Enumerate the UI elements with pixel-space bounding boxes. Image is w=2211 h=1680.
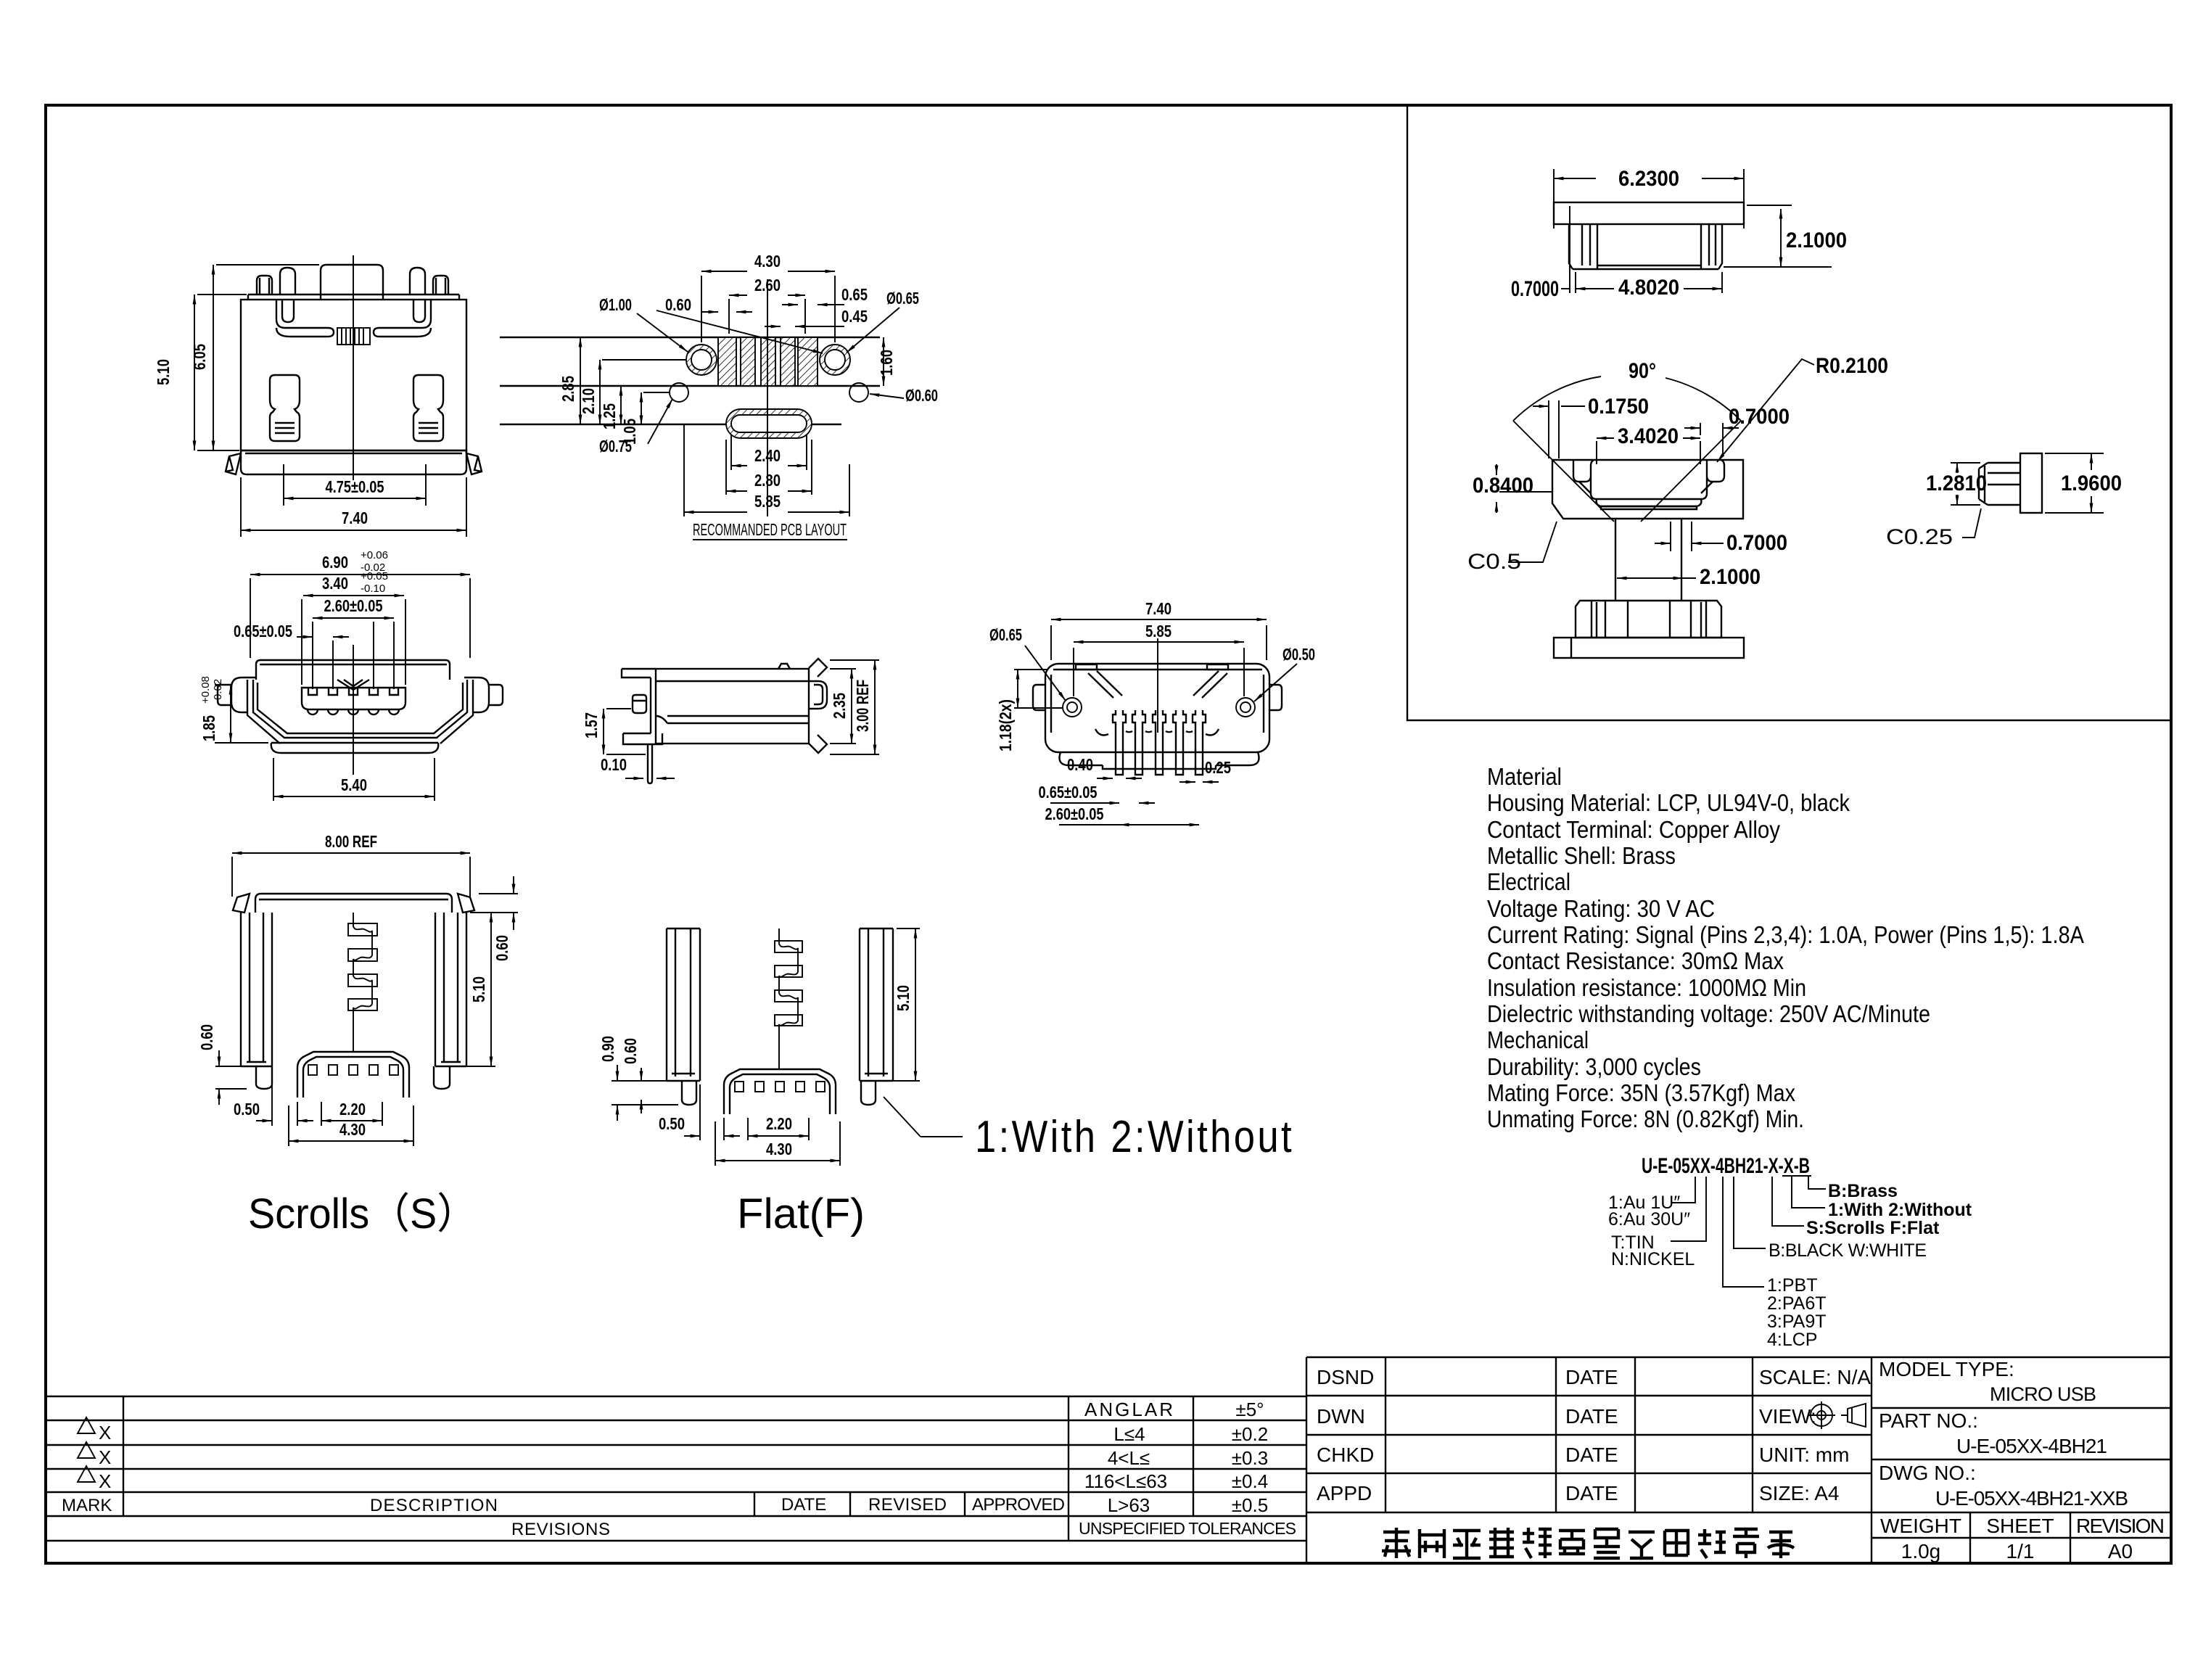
svg-text:4.75±0.05: 4.75±0.05 — [326, 477, 384, 496]
svg-text:UNIT: mm: UNIT: mm — [1759, 1444, 1849, 1466]
svg-text:0.60: 0.60 — [621, 1038, 640, 1064]
svg-text:0.65: 0.65 — [841, 285, 868, 304]
svg-text:5.10: 5.10 — [469, 976, 488, 1002]
svg-text:2:PA6T: 2:PA6T — [1767, 1293, 1827, 1314]
svg-text:+0.08: +0.08 — [199, 676, 212, 704]
svg-text:RECOMMANDED PCB LAYOUT: RECOMMANDED PCB LAYOUT — [693, 520, 847, 539]
svg-text:SHEET: SHEET — [1986, 1515, 2054, 1537]
svg-text:MARK: MARK — [62, 1496, 112, 1515]
svg-text:2.80: 2.80 — [754, 471, 781, 490]
svg-text:1.2810: 1.2810 — [1926, 472, 1987, 495]
svg-text:2.60±0.05: 2.60±0.05 — [1045, 804, 1104, 823]
svg-text:L>63: L>63 — [1108, 1494, 1150, 1516]
svg-text:Housing Material: LCP, UL94V-0: Housing Material: LCP, UL94V-0, black — [1487, 789, 1850, 816]
svg-text:6.90: 6.90 — [322, 553, 348, 572]
svg-text:5.85: 5.85 — [1145, 622, 1172, 641]
svg-text:2.1000: 2.1000 — [1700, 565, 1761, 589]
svg-text:0.60: 0.60 — [493, 935, 511, 961]
svg-text:0.7000: 0.7000 — [1729, 405, 1790, 429]
svg-text:1.18(2x): 1.18(2x) — [996, 699, 1015, 752]
svg-text:1.57: 1.57 — [582, 712, 601, 738]
svg-text:Ø1.00: Ø1.00 — [599, 295, 632, 314]
svg-text:Mechanical: Mechanical — [1487, 1026, 1589, 1053]
svg-text:1.05: 1.05 — [620, 419, 639, 445]
svg-text:1.60: 1.60 — [877, 350, 896, 376]
svg-text:Unmating Force: 8N (0.82Kgf) M: Unmating Force: 8N (0.82Kgf) Min. — [1487, 1105, 1804, 1132]
svg-text:1:With 2:Without: 1:With 2:Without — [1828, 1200, 1972, 1220]
svg-text:X: X — [99, 1446, 111, 1468]
svg-text:DWG NO.:: DWG NO.: — [1879, 1462, 1976, 1484]
svg-text:PART NO.:: PART NO.: — [1879, 1409, 1978, 1432]
svg-text:3.40: 3.40 — [322, 574, 348, 593]
svg-text:5.10: 5.10 — [154, 359, 173, 385]
svg-text:L≤4: L≤4 — [1113, 1423, 1145, 1445]
svg-text:6.05: 6.05 — [190, 344, 209, 370]
svg-text:-0.10: -0.10 — [361, 582, 385, 595]
svg-text:1.85: 1.85 — [199, 715, 218, 741]
svg-text:±0.5: ±0.5 — [1232, 1494, 1268, 1516]
svg-text:90°: 90° — [1629, 359, 1656, 383]
svg-text:1/1: 1/1 — [2006, 1540, 2035, 1562]
svg-text:DESCRIPTION: DESCRIPTION — [370, 1496, 498, 1515]
svg-text:Ø0.65: Ø0.65 — [886, 289, 919, 308]
svg-text:2.85: 2.85 — [559, 376, 577, 402]
svg-text:Metallic Shell: Brass: Metallic Shell: Brass — [1487, 842, 1676, 869]
svg-text:±5°: ±5° — [1235, 1399, 1264, 1420]
svg-text:Current Rating: Signal (Pins 2: Current Rating: Signal (Pins 2,3,4): 1.0… — [1487, 921, 2084, 948]
svg-text:0.65±0.05: 0.65±0.05 — [1039, 783, 1098, 802]
svg-text:U-E-05XX-4BH21-XXB: U-E-05XX-4BH21-XXB — [1935, 1487, 2128, 1510]
svg-text:APPROVED: APPROVED — [972, 1495, 1065, 1515]
svg-text:2.20: 2.20 — [766, 1114, 792, 1133]
svg-text:0.50: 0.50 — [659, 1114, 685, 1133]
svg-text:5.85: 5.85 — [754, 492, 781, 511]
svg-text:S:Scrolls F:Flat: S:Scrolls F:Flat — [1806, 1218, 1940, 1238]
svg-text:Flat(F): Flat(F) — [737, 1190, 865, 1238]
svg-text:MODEL TYPE:: MODEL TYPE: — [1879, 1358, 2014, 1380]
svg-text:Mating Force: 35N (3.57Kgf) Ma: Mating Force: 35N (3.57Kgf) Max — [1487, 1079, 1795, 1106]
svg-text:Ø0.65: Ø0.65 — [989, 625, 1022, 644]
svg-text:0.60: 0.60 — [197, 1024, 216, 1050]
svg-text:3.00 REF: 3.00 REF — [853, 680, 872, 732]
svg-text:0.10: 0.10 — [601, 755, 627, 774]
svg-text:Electrical: Electrical — [1487, 868, 1570, 895]
svg-text:0.7000: 0.7000 — [1511, 277, 1559, 301]
svg-text:REVISIONS: REVISIONS — [511, 1520, 610, 1539]
svg-text:REVISION: REVISION — [2076, 1515, 2165, 1537]
svg-text:A0: A0 — [2108, 1540, 2133, 1562]
svg-text:DATE: DATE — [1565, 1482, 1618, 1504]
svg-text:±0.4: ±0.4 — [1232, 1470, 1268, 1492]
svg-text:4.30: 4.30 — [766, 1140, 792, 1158]
svg-text:0.90: 0.90 — [598, 1036, 617, 1062]
svg-text:±0.3: ±0.3 — [1232, 1447, 1268, 1469]
svg-text:0.50: 0.50 — [234, 1100, 260, 1119]
svg-text:1:With 2:Without: 1:With 2:Without — [975, 1112, 1294, 1162]
svg-text:1.0g: 1.0g — [1901, 1540, 1941, 1562]
svg-text:2.20: 2.20 — [339, 1100, 366, 1119]
svg-text:Ø0.50: Ø0.50 — [1282, 645, 1315, 664]
svg-text:Contact Terminal: Copper Alloy: Contact Terminal: Copper Alloy — [1487, 816, 1780, 843]
svg-text:B:BLACK W:WHITE: B:BLACK W:WHITE — [1769, 1240, 1927, 1261]
svg-text:2.40: 2.40 — [754, 446, 781, 465]
svg-text:7.40: 7.40 — [1145, 599, 1172, 618]
svg-text:6:Au 30U″: 6:Au 30U″ — [1608, 1209, 1690, 1230]
svg-text:0.65±0.05: 0.65±0.05 — [234, 622, 292, 641]
svg-text:Scrolls（S）: Scrolls（S） — [248, 1190, 477, 1238]
svg-text:0.1750: 0.1750 — [1588, 395, 1649, 419]
svg-text:3:PA9T: 3:PA9T — [1767, 1312, 1827, 1332]
svg-text:2.1000: 2.1000 — [1786, 228, 1847, 252]
svg-text:2.60±0.05: 2.60±0.05 — [324, 596, 383, 615]
svg-text:-0.02: -0.02 — [212, 679, 224, 704]
svg-text:Contact Resistance: 30mΩ Max: Contact Resistance: 30mΩ Max — [1487, 947, 1784, 974]
svg-text:U-E-05XX-4BH21-X-X-B: U-E-05XX-4BH21-X-X-B — [1642, 1154, 1810, 1178]
svg-text:2.60: 2.60 — [754, 276, 781, 295]
svg-text:DATE: DATE — [1565, 1405, 1618, 1428]
svg-text:X: X — [99, 1422, 111, 1444]
svg-text:7.40: 7.40 — [342, 508, 368, 527]
svg-text:WEIGHT: WEIGHT — [1880, 1515, 1961, 1537]
svg-text:B:Brass: B:Brass — [1828, 1181, 1898, 1201]
svg-text:+0.05: +0.05 — [361, 570, 388, 582]
svg-text:0.7000: 0.7000 — [1726, 531, 1787, 555]
svg-text:1.9600: 1.9600 — [2061, 472, 2122, 495]
svg-text:APPD: APPD — [1317, 1482, 1372, 1504]
svg-text:Voltage Rating: 30 V AC: Voltage Rating: 30 V AC — [1487, 895, 1715, 922]
svg-text:SIZE: A4: SIZE: A4 — [1759, 1482, 1840, 1504]
svg-text:Material: Material — [1487, 763, 1562, 790]
svg-text:6.2300: 6.2300 — [1618, 167, 1679, 191]
svg-text:DATE: DATE — [1565, 1444, 1618, 1466]
svg-text:2.10: 2.10 — [579, 388, 598, 414]
svg-text:CHKD: CHKD — [1317, 1444, 1374, 1466]
svg-text:±0.2: ±0.2 — [1232, 1423, 1268, 1445]
svg-text:4.8020: 4.8020 — [1618, 276, 1679, 300]
svg-text:Ø0.60: Ø0.60 — [905, 386, 938, 405]
svg-text:DSND: DSND — [1317, 1366, 1374, 1388]
svg-text:X: X — [99, 1470, 111, 1492]
svg-text:5.40: 5.40 — [341, 775, 367, 794]
svg-text:DATE: DATE — [781, 1495, 826, 1515]
svg-text:REVISED: REVISED — [868, 1495, 947, 1515]
svg-text:0.8400: 0.8400 — [1473, 474, 1533, 498]
svg-text:2.35: 2.35 — [830, 693, 849, 719]
svg-text:0.45: 0.45 — [841, 307, 868, 326]
svg-text:C0.25: C0.25 — [1886, 525, 1953, 549]
svg-text:Dielectric withstanding voltag: Dielectric withstanding voltage: 250V AC… — [1487, 1000, 1930, 1027]
svg-text:VIEW:: VIEW: — [1759, 1405, 1816, 1428]
svg-text:8.00 REF: 8.00 REF — [325, 832, 377, 851]
svg-text:0.25: 0.25 — [1205, 758, 1231, 777]
svg-text:4:LCP: 4:LCP — [1767, 1330, 1817, 1350]
svg-text:5.10: 5.10 — [894, 985, 913, 1011]
svg-text:4.30: 4.30 — [339, 1120, 366, 1139]
svg-text:R0.2100: R0.2100 — [1816, 354, 1888, 378]
svg-text:Durability: 3,000 cycles: Durability: 3,000 cycles — [1487, 1053, 1701, 1080]
svg-text:N:NICKEL: N:NICKEL — [1611, 1249, 1695, 1269]
svg-text:UNSPECIFIED TOLERANCES: UNSPECIFIED TOLERANCES — [1079, 1519, 1296, 1538]
svg-text:DWN: DWN — [1317, 1405, 1365, 1428]
svg-text:SCALE: N/A: SCALE: N/A — [1759, 1366, 1871, 1388]
svg-text:116<L≤63: 116<L≤63 — [1084, 1470, 1167, 1492]
svg-text:MICRO USB: MICRO USB — [1990, 1383, 2099, 1405]
svg-text:0.60: 0.60 — [665, 295, 691, 314]
svg-text:4<L≤: 4<L≤ — [1108, 1447, 1150, 1469]
svg-text:4.30: 4.30 — [754, 252, 781, 271]
svg-text:0.40: 0.40 — [1067, 755, 1093, 774]
svg-text:1.25: 1.25 — [600, 403, 619, 429]
svg-text:U-E-05XX-4BH21: U-E-05XX-4BH21 — [1956, 1435, 2107, 1457]
svg-text:DATE: DATE — [1565, 1366, 1618, 1388]
svg-text:3.4020: 3.4020 — [1618, 424, 1679, 448]
svg-text:1:PBT: 1:PBT — [1767, 1275, 1817, 1296]
svg-text:+0.06: +0.06 — [361, 549, 388, 561]
svg-text:Insulation resistance: 1000MΩ: Insulation resistance: 1000MΩ Min — [1487, 974, 1806, 1001]
